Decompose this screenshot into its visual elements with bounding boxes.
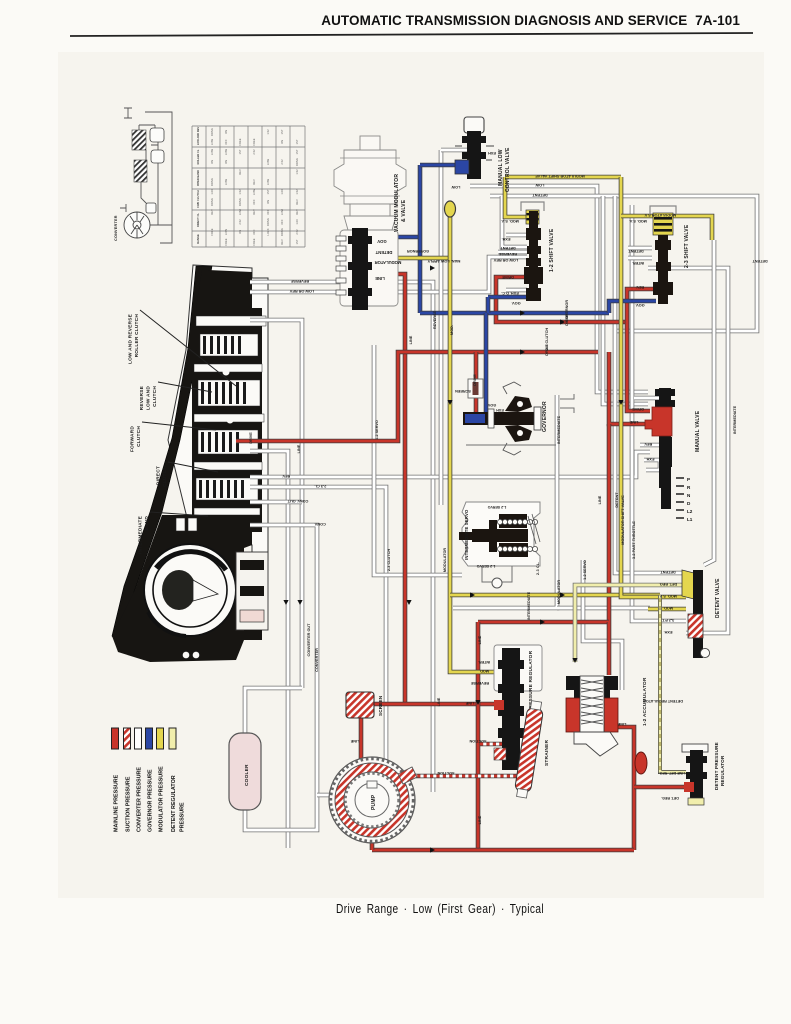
- svg-text:DRIVE: DRIVE: [295, 158, 299, 166]
- svg-text:MOD. S.V.: MOD. S.V.: [629, 219, 647, 223]
- svg-text:OFF: OFF: [252, 199, 256, 205]
- svg-text:INTER BAND: INTER BAND: [196, 170, 200, 186]
- svg-text:DRIVE: DRIVE: [502, 275, 514, 279]
- svg-text:EXH. D.C.: EXH. D.C.: [501, 291, 519, 295]
- svg-text:STRAINER: STRAINER: [544, 740, 550, 766]
- svg-text:1.00: 1.00: [295, 219, 299, 225]
- svg-text:PUMP: PUMP: [371, 794, 377, 810]
- svg-text:DRIVE: DRIVE: [210, 128, 214, 136]
- svg-text:1-2 SERVO: 1-2 SERVO: [476, 564, 495, 568]
- svg-text:REV.: REV.: [636, 285, 645, 289]
- svg-text:REVERSE: REVERSE: [498, 252, 517, 256]
- svg-text:AUTOMATIC TRANSMISSION DIAGNOS: AUTOMATIC TRANSMISSION DIAGNOSIS AND SER…: [321, 13, 740, 28]
- svg-text:DRIVE: DRIVE: [210, 178, 214, 186]
- svg-text:REV: REV: [295, 209, 299, 215]
- svg-text:INTERMEDIATE: INTERMEDIATE: [557, 415, 561, 444]
- svg-text:REVERSE: REVERSE: [433, 310, 437, 329]
- svg-text:MODULATOR SHIFT VALVE: MODULATOR SHIFT VALVE: [621, 495, 625, 545]
- svg-text:DETENT: DETENT: [660, 570, 676, 574]
- svg-text:RANGE: RANGE: [196, 234, 200, 244]
- svg-text:MAINLINE PRESSURE: MAINLINE PRESSURE: [114, 774, 120, 832]
- svg-text:REV: REV: [252, 179, 256, 185]
- svg-text:1-2 SERVO: 1-2 SERVO: [375, 420, 379, 440]
- svg-text:SCREEN: SCREEN: [455, 389, 471, 393]
- svg-text:1.52: 1.52: [295, 169, 299, 175]
- svg-text:SUCTION PRESSURE: SUCTION PRESSURE: [126, 776, 132, 832]
- svg-text:DET. REG.: DET. REG.: [661, 796, 679, 800]
- svg-text:LOW AND: LOW AND: [146, 386, 152, 410]
- svg-text:1.00: 1.00: [280, 189, 284, 195]
- svg-text:Drive Range · Low (First Gear): Drive Range · Low (First Gear) · Typical: [336, 902, 544, 916]
- svg-text:GOV.: GOV.: [511, 301, 520, 305]
- svg-text:DETENT: DETENT: [375, 250, 392, 255]
- svg-text:SUCTION: SUCTION: [469, 739, 486, 743]
- svg-text:GOV: GOV: [377, 239, 387, 244]
- svg-text:2.52: 2.52: [280, 159, 284, 165]
- svg-text:1ST: 1ST: [295, 239, 299, 244]
- svg-text:OFF: OFF: [266, 209, 270, 215]
- svg-text:LOW: LOW: [451, 185, 460, 189]
- svg-text:MOD. S.V.: MOD. S.V.: [501, 219, 519, 223]
- svg-text:1.52: 1.52: [295, 189, 299, 195]
- svg-text:CONVERTER: CONVERTER: [315, 648, 319, 672]
- svg-text:2.52: 2.52: [295, 229, 299, 235]
- svg-text:DETENT: DETENT: [500, 246, 516, 250]
- svg-text:REV: REV: [238, 169, 242, 175]
- svg-text:OFF: OFF: [224, 139, 228, 145]
- svg-text:REVERSE: REVERSE: [470, 681, 489, 685]
- svg-text:LINE: LINE: [465, 701, 474, 705]
- svg-text:DRIVE: DRIVE: [280, 228, 284, 236]
- svg-text:DRIVE: DRIVE: [238, 198, 242, 206]
- svg-text:P: P: [687, 477, 690, 482]
- svg-text:LINE: LINE: [617, 722, 626, 726]
- svg-text:2-3 CLUTCH: 2-3 CLUTCH: [387, 549, 391, 571]
- svg-text:REV: REV: [210, 209, 214, 215]
- svg-text:LOW OR REV: LOW OR REV: [289, 289, 314, 293]
- svg-text:LINE: LINE: [437, 697, 441, 706]
- svg-text:BAND: BAND: [144, 516, 150, 531]
- svg-text:1ST: 1ST: [238, 149, 242, 154]
- svg-text:LOW: LOW: [238, 208, 242, 215]
- svg-text:CLUTCH: CLUTCH: [162, 466, 168, 487]
- svg-text:DETENT: DETENT: [752, 259, 768, 263]
- svg-text:ON: ON: [280, 140, 284, 144]
- svg-text:INTER.: INTER.: [632, 261, 644, 265]
- svg-text:LINE: LINE: [629, 420, 638, 424]
- svg-text:LOW AND REV: LOW AND REV: [196, 127, 200, 146]
- svg-text:1ST: 1ST: [295, 139, 299, 144]
- svg-text:1.00: 1.00: [210, 189, 214, 195]
- svg-text:OFF: OFF: [280, 219, 284, 225]
- svg-text:REV: REV: [252, 209, 256, 215]
- svg-text:GOVERNOR: GOVERNOR: [407, 249, 429, 253]
- svg-text:LOW AND REVERSE: LOW AND REVERSE: [128, 313, 134, 364]
- svg-text:LINE: LINE: [297, 444, 301, 453]
- svg-text:EXH: EXH: [496, 408, 504, 412]
- svg-text:SUCTION: SUCTION: [437, 771, 454, 775]
- svg-text:FREE: FREE: [210, 228, 214, 235]
- svg-text:CONTROL VALVE: CONTROL VALVE: [505, 147, 511, 192]
- svg-text:MODULATOR: MODULATOR: [443, 548, 447, 573]
- svg-text:CONVERTER OUT: CONVERTER OUT: [307, 623, 311, 657]
- svg-text:MODULATOR S.V.: MODULATOR S.V.: [644, 213, 676, 217]
- svg-text:LINE: LINE: [409, 335, 413, 344]
- svg-text:1ST: 1ST: [295, 149, 299, 154]
- svg-text:DETENT VALVE: DETENT VALVE: [715, 578, 721, 618]
- svg-text:LINE: LINE: [598, 495, 602, 504]
- svg-text:DRIVE: DRIVE: [266, 218, 270, 226]
- svg-text:& VALVE: & VALVE: [401, 199, 407, 222]
- svg-text:LOW: LOW: [224, 178, 228, 185]
- svg-text:FREE: FREE: [224, 238, 228, 245]
- svg-text:2.52: 2.52: [252, 149, 256, 155]
- svg-text:1.52: 1.52: [266, 129, 270, 135]
- svg-text:1ST: 1ST: [266, 189, 270, 194]
- svg-text:3-2 P.T.: 3-2 P.T.: [662, 618, 675, 622]
- svg-text:FREE: FREE: [238, 138, 242, 145]
- svg-text:CONVERTER: CONVERTER: [114, 215, 118, 241]
- svg-text:DRIVE: DRIVE: [473, 374, 477, 386]
- svg-text:LOW: LOW: [224, 148, 228, 155]
- svg-text:2-3 SHIFT VALVE: 2-3 SHIFT VALVE: [684, 224, 690, 268]
- svg-text:DRIVE: DRIVE: [210, 198, 214, 206]
- svg-text:DRIVE: DRIVE: [632, 407, 644, 411]
- svg-text:CONV. OUT: CONV. OUT: [287, 499, 308, 503]
- svg-text:DRIVE: DRIVE: [565, 314, 569, 326]
- svg-text:LOW: LOW: [266, 178, 270, 185]
- svg-text:LOW: LOW: [252, 188, 256, 195]
- svg-text:DRIVE: DRIVE: [249, 432, 253, 444]
- svg-text:GOVERNOR PRESSURE: GOVERNOR PRESSURE: [148, 769, 154, 832]
- svg-text:MOD. S.V.: MOD. S.V.: [659, 594, 677, 598]
- svg-text:DETENT: DETENT: [532, 193, 548, 197]
- svg-text:EXH.: EXH.: [646, 457, 655, 461]
- svg-text:LOW: LOW: [280, 208, 284, 215]
- svg-text:L1: L1: [687, 517, 693, 522]
- svg-text:COOLER: COOLER: [244, 764, 250, 786]
- svg-text:3-2 PART THROTTLE: 3-2 PART THROTTLE: [632, 521, 636, 559]
- svg-text:OFF: OFF: [252, 229, 256, 235]
- svg-text:INTERMEDIATE: INTERMEDIATE: [733, 405, 737, 434]
- svg-text:2-3 CL.: 2-3 CL.: [536, 562, 540, 575]
- svg-text:1ST: 1ST: [280, 129, 284, 134]
- svg-text:REVERSE: REVERSE: [139, 385, 145, 410]
- svg-text:REV: REV: [280, 239, 284, 245]
- svg-text:REV: REV: [295, 199, 299, 205]
- svg-text:LINE: LINE: [350, 739, 359, 743]
- svg-text:1.52: 1.52: [238, 189, 242, 195]
- svg-text:ON: ON: [224, 130, 228, 134]
- svg-text:DETENT: DETENT: [615, 492, 619, 508]
- svg-text:REGULATOR: REGULATOR: [720, 755, 725, 786]
- svg-text:REV.: REV.: [644, 442, 653, 446]
- svg-text:GOVERNOR: GOVERNOR: [542, 401, 548, 432]
- svg-text:VACUUM MODULATOR: VACUUM MODULATOR: [394, 174, 400, 232]
- svg-text:1-2 SERVO: 1-2 SERVO: [487, 505, 506, 509]
- svg-text:SCREEN: SCREEN: [378, 695, 383, 716]
- svg-text:MOD.: MOD.: [663, 606, 673, 610]
- svg-text:CLUTCH: CLUTCH: [152, 386, 158, 407]
- svg-text:LINE DET. REG.: LINE DET. REG.: [659, 771, 686, 775]
- svg-text:DIRECT CL: DIRECT CL: [196, 213, 200, 227]
- svg-text:MOD.: MOD.: [450, 325, 454, 335]
- svg-text:ON: ON: [266, 200, 270, 204]
- svg-text:FWD CLUTCH: FWD CLUTCH: [196, 190, 200, 207]
- svg-text:FREE: FREE: [252, 238, 256, 245]
- svg-text:ROLLER CLUTCH: ROLLER CLUTCH: [134, 314, 140, 358]
- svg-text:CONV.: CONV.: [314, 522, 326, 526]
- svg-text:LOW: LOW: [210, 138, 214, 145]
- svg-text:CONVERTER PRESSURE: CONVERTER PRESSURE: [137, 767, 143, 832]
- svg-text:LOW: LOW: [210, 148, 214, 155]
- svg-text:INTERMEDIATE: INTERMEDIATE: [527, 591, 531, 620]
- svg-text:INTER.: INTER.: [478, 660, 490, 664]
- svg-text:PRESSURE: PRESSURE: [180, 802, 186, 832]
- svg-text:ON: ON: [238, 230, 242, 234]
- svg-text:L2: L2: [687, 509, 693, 514]
- svg-text:LOW OR REV: LOW OR REV: [493, 258, 518, 262]
- svg-text:REV.: REV.: [282, 474, 291, 478]
- svg-text:FREE: FREE: [252, 138, 256, 145]
- svg-text:LOW: LOW: [224, 228, 228, 235]
- svg-text:LOCK: LOCK: [266, 228, 270, 236]
- svg-text:1-2 SHIFT VALVE: 1-2 SHIFT VALVE: [549, 228, 555, 272]
- svg-text:EXH: EXH: [488, 151, 496, 155]
- svg-text:LOW: LOW: [266, 158, 270, 165]
- svg-text:MODULATOR: MODULATOR: [375, 260, 402, 265]
- svg-text:DETENT REGULATOR: DETENT REGULATOR: [171, 775, 177, 832]
- svg-text:CLUTCH: CLUTCH: [136, 426, 142, 447]
- svg-text:DET. REG.: DET. REG.: [659, 582, 678, 586]
- svg-text:ON: ON: [224, 160, 228, 164]
- svg-text:FORWARD: FORWARD: [130, 426, 136, 452]
- svg-text:INTERMEDIATE: INTERMEDIATE: [138, 515, 144, 554]
- svg-text:ON: ON: [210, 160, 214, 164]
- svg-text:EXH.: EXH.: [502, 237, 511, 241]
- svg-text:EXH.: EXH.: [664, 630, 673, 634]
- svg-text:MODULATOR: MODULATOR: [557, 580, 561, 605]
- svg-text:1-2 SERVO: 1-2 SERVO: [583, 560, 587, 580]
- svg-text:LINE: LINE: [375, 276, 385, 281]
- svg-text:MAN. LOW APPLY: MAN. LOW APPLY: [427, 259, 460, 263]
- svg-text:DRIVE: DRIVE: [545, 344, 549, 356]
- svg-text:LINE: LINE: [478, 635, 482, 644]
- svg-text:INTERMEDIATE SERVO: INTERMEDIATE SERVO: [464, 509, 469, 560]
- svg-text:MODULATOR SHIFT VALVE: MODULATOR SHIFT VALVE: [535, 174, 585, 178]
- svg-text:MOD.: MOD.: [479, 669, 489, 673]
- svg-text:MANUAL LOW: MANUAL LOW: [498, 149, 504, 186]
- svg-text:REVERSE: REVERSE: [290, 279, 309, 283]
- svg-text:GOV: GOV: [487, 403, 496, 407]
- svg-text:2.52: 2.52: [238, 219, 242, 225]
- svg-text:LINE: LINE: [478, 815, 482, 824]
- svg-text:DETENT: DETENT: [628, 249, 644, 253]
- svg-text:ROLLER CL: ROLLER CL: [196, 149, 200, 164]
- svg-text:LOW: LOW: [535, 183, 544, 187]
- svg-text:DETENT PRESSURE: DETENT PRESSURE: [714, 742, 719, 790]
- svg-text:MANUAL VALVE: MANUAL VALVE: [695, 410, 701, 452]
- svg-text:GOV.: GOV.: [635, 303, 644, 307]
- svg-text:DIRECT: DIRECT: [156, 466, 162, 485]
- svg-text:2-3 CL.: 2-3 CL.: [314, 484, 327, 488]
- svg-text:MODULATOR PRESSURE: MODULATOR PRESSURE: [159, 766, 165, 832]
- svg-text:DETENT REGULATOR: DETENT REGULATOR: [643, 699, 683, 703]
